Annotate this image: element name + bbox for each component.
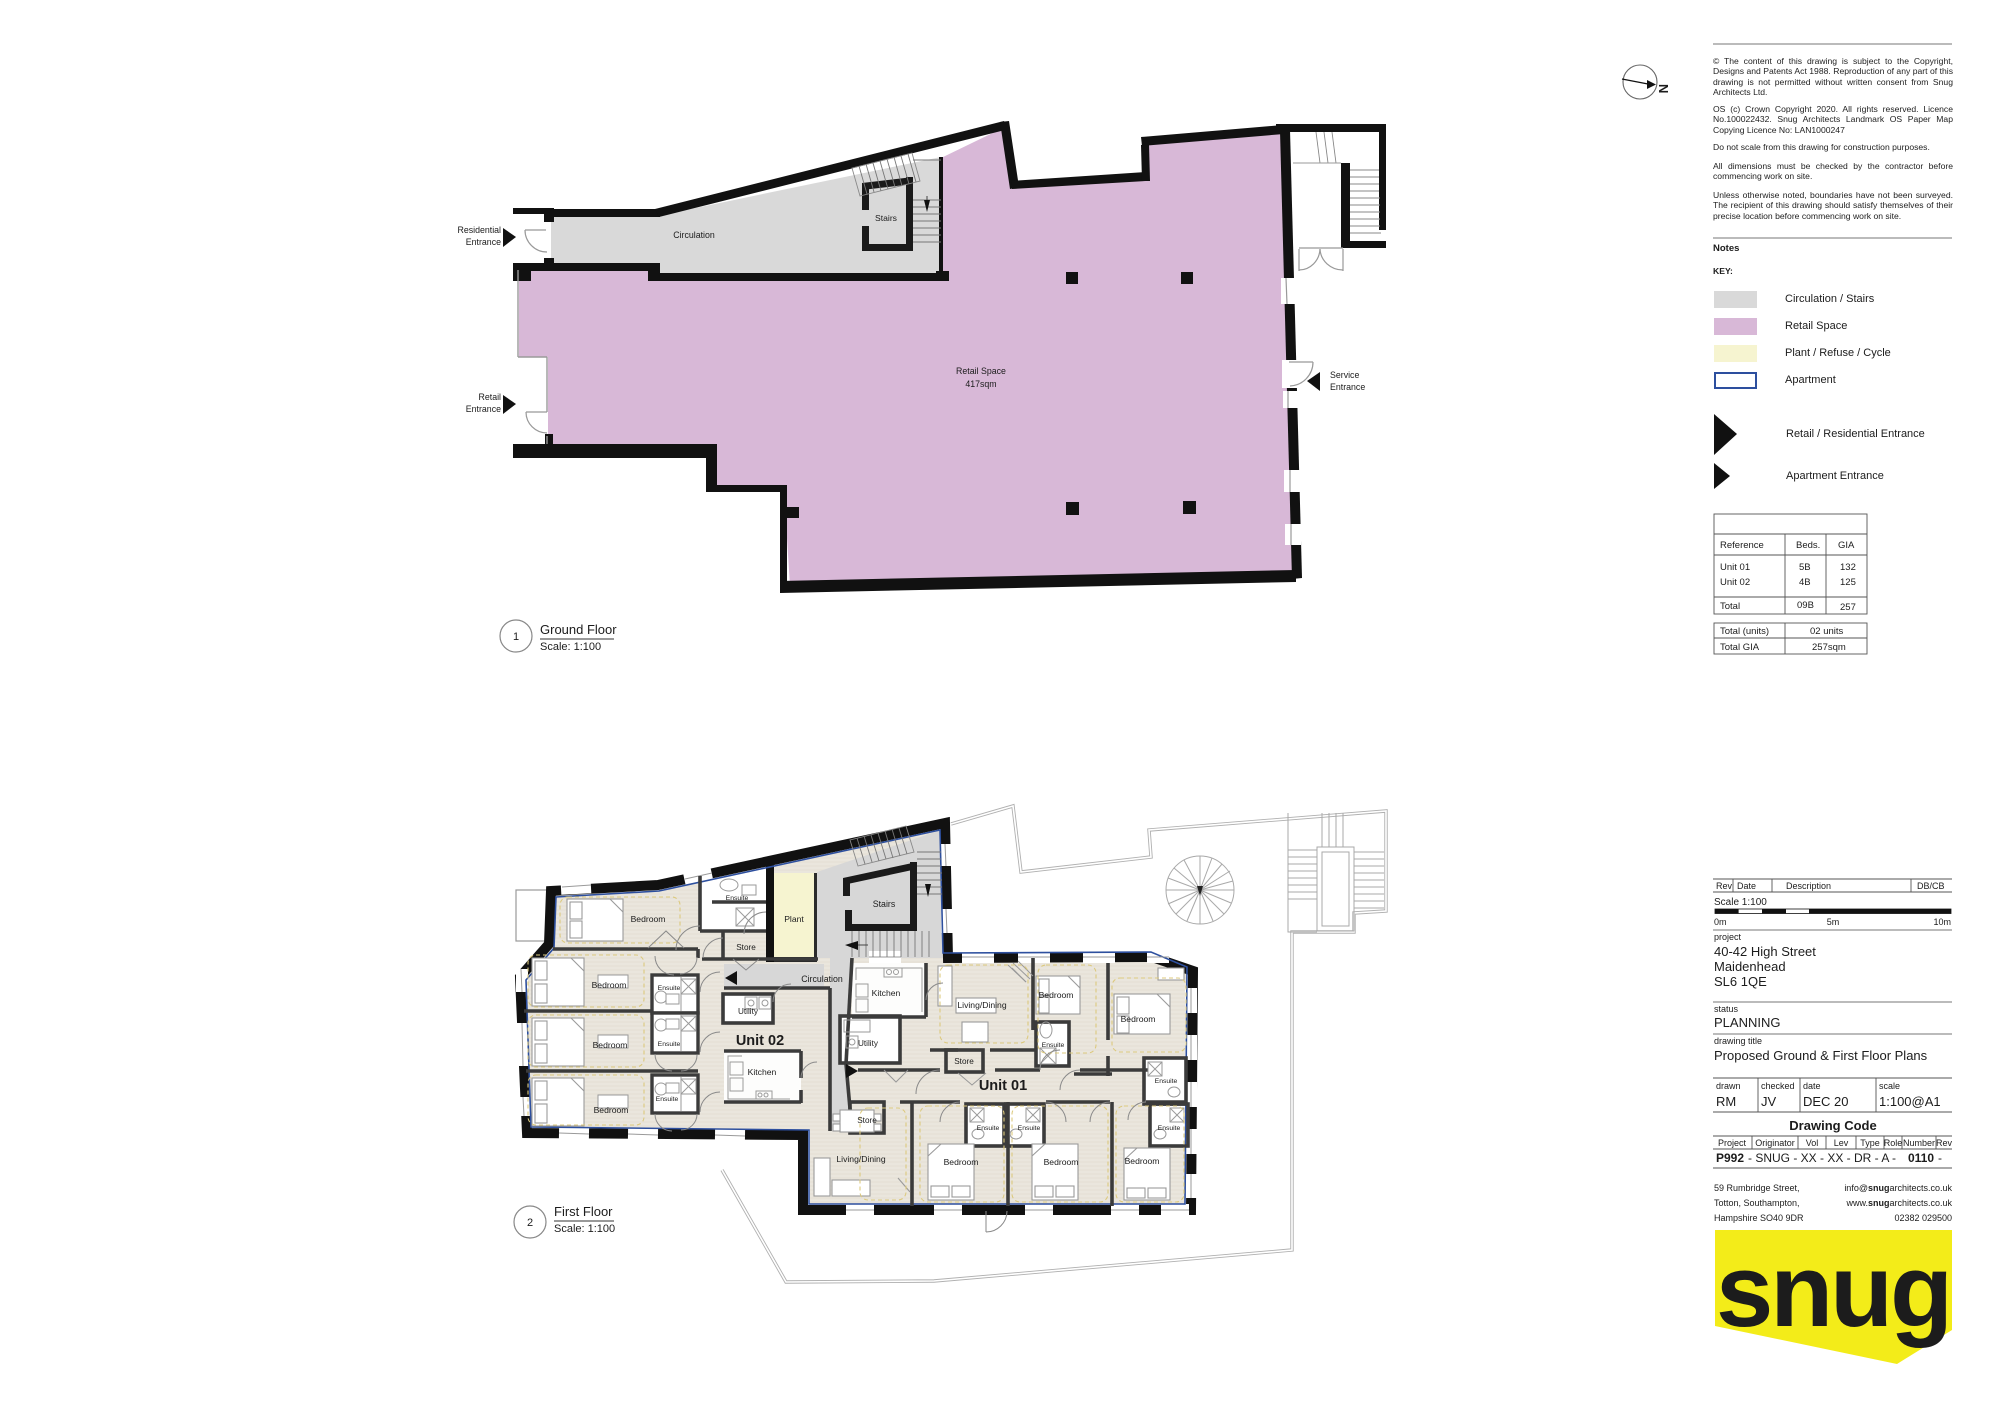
svg-text:Ensuite: Ensuite: [1155, 1078, 1178, 1085]
svg-text:Total GIA: Total GIA: [1720, 642, 1760, 653]
svg-text:Store: Store: [857, 1116, 877, 1125]
svg-text:JV: JV: [1761, 1094, 1777, 1109]
svg-text:Number: Number: [1903, 1138, 1935, 1148]
svg-text:Entrance: Entrance: [466, 237, 501, 247]
svg-text:scale: scale: [1879, 1081, 1900, 1091]
svg-text:Originator: Originator: [1755, 1138, 1795, 1148]
svg-text:Scale 1:100: Scale 1:100: [1714, 897, 1767, 908]
svg-text:Kitchen: Kitchen: [872, 988, 901, 998]
svg-text:Stairs: Stairs: [873, 899, 896, 909]
svg-text:125: 125: [1840, 577, 1856, 588]
svg-text:Bedroom: Bedroom: [593, 1040, 628, 1050]
svg-text:Rev: Rev: [1716, 881, 1733, 891]
svg-text:Bedroom: Bedroom: [592, 980, 627, 990]
svg-text:Circulation: Circulation: [673, 230, 715, 240]
svg-text:date: date: [1803, 1081, 1821, 1091]
svg-text:Rev: Rev: [1936, 1138, 1953, 1148]
svg-text:Unit 02: Unit 02: [736, 1033, 784, 1049]
svg-text:Service: Service: [1330, 370, 1359, 380]
svg-text:checked: checked: [1761, 1081, 1795, 1091]
svg-text:Ensuite: Ensuite: [656, 1096, 679, 1103]
svg-text:Kitchen: Kitchen: [748, 1067, 777, 1077]
svg-text:40-42 High Street: 40-42 High Street: [1714, 944, 1816, 959]
svg-text:Living/Dining: Living/Dining: [836, 1154, 885, 1164]
svg-text:Project: Project: [1718, 1138, 1747, 1148]
svg-text:Utility: Utility: [738, 1007, 759, 1016]
svg-text:Utility: Utility: [858, 1039, 879, 1048]
svg-text:Unit 01: Unit 01: [1720, 562, 1750, 573]
svg-text:Drawing Code: Drawing Code: [1789, 1118, 1876, 1133]
svg-text:Bedroom: Bedroom: [594, 1105, 629, 1115]
svg-text:Date: Date: [1737, 881, 1756, 891]
svg-text:Unit 02: Unit 02: [1720, 577, 1750, 588]
svg-text:Reference: Reference: [1720, 540, 1764, 551]
svg-text:132: 132: [1840, 562, 1856, 573]
svg-text:0m: 0m: [1714, 917, 1727, 927]
svg-text:1: 1: [513, 631, 519, 643]
svg-text:Total: Total: [1720, 601, 1740, 612]
svg-text:N: N: [1656, 84, 1671, 93]
svg-text:snug: snug: [1716, 1233, 1950, 1348]
svg-text:First Floor: First Floor: [554, 1204, 613, 1219]
svg-text:Ensuite: Ensuite: [977, 1125, 1000, 1132]
svg-text:10m: 10m: [1933, 917, 1951, 927]
svg-text:257sqm: 257sqm: [1812, 642, 1846, 653]
svg-text:P992: P992: [1716, 1151, 1744, 1165]
svg-text:Living/Dining: Living/Dining: [957, 1000, 1006, 1010]
svg-text:Store: Store: [736, 943, 756, 952]
svg-text:Bedroom: Bedroom: [1039, 990, 1074, 1000]
svg-text:Total (units): Total (units): [1720, 626, 1769, 637]
svg-text:Ensuite: Ensuite: [1018, 1125, 1041, 1132]
svg-text:DB/CB: DB/CB: [1917, 881, 1945, 891]
svg-text:GIA: GIA: [1838, 540, 1855, 551]
svg-text:Ensuite: Ensuite: [1158, 1125, 1181, 1132]
svg-text:Ensuite: Ensuite: [1042, 1042, 1065, 1049]
svg-text:5m: 5m: [1827, 917, 1840, 927]
svg-text:Circulation: Circulation: [801, 974, 843, 984]
svg-text:Proposed Ground & First Floor: Proposed Ground & First Floor Plans: [1714, 1048, 1928, 1063]
svg-text:Bedroom: Bedroom: [1121, 1014, 1156, 1024]
svg-text:Retail: Retail: [479, 392, 502, 402]
svg-text:-: -: [1938, 1151, 1942, 1165]
svg-text:Unit 01: Unit 01: [979, 1078, 1027, 1094]
svg-text:Scale: 1:100: Scale: 1:100: [540, 641, 601, 653]
svg-text:Bedroom: Bedroom: [1044, 1157, 1079, 1167]
svg-text:DEC 20: DEC 20: [1803, 1094, 1849, 1109]
svg-text:project: project: [1714, 932, 1742, 942]
svg-text:0110: 0110: [1908, 1151, 1934, 1165]
svg-text:Bedroom: Bedroom: [944, 1157, 979, 1167]
svg-text:Entrance: Entrance: [466, 404, 501, 414]
svg-text:02 units: 02 units: [1810, 626, 1844, 637]
svg-text:Residential: Residential: [457, 225, 501, 235]
svg-text:Maidenhead: Maidenhead: [1714, 959, 1786, 974]
svg-text:Description: Description: [1786, 881, 1831, 891]
svg-text:417sqm: 417sqm: [965, 379, 996, 389]
svg-text:Bedroom: Bedroom: [1125, 1156, 1160, 1166]
svg-text:Entrance: Entrance: [1330, 382, 1365, 392]
svg-text:PLANNING: PLANNING: [1714, 1015, 1780, 1030]
svg-text:drawing title: drawing title: [1714, 1036, 1762, 1046]
svg-text:Plant: Plant: [784, 914, 804, 924]
svg-text:drawn: drawn: [1716, 1081, 1741, 1091]
svg-text:09B: 09B: [1797, 600, 1814, 611]
svg-text:Lev: Lev: [1834, 1138, 1849, 1148]
svg-text:Beds.: Beds.: [1796, 540, 1820, 551]
svg-text:257: 257: [1840, 602, 1856, 613]
svg-text:Scale: 1:100: Scale: 1:100: [554, 1223, 615, 1235]
svg-text:Ensuite: Ensuite: [658, 1041, 681, 1048]
svg-text:Type: Type: [1860, 1138, 1880, 1148]
svg-text:Stairs: Stairs: [875, 213, 897, 223]
svg-text:Ensuite: Ensuite: [726, 895, 749, 902]
svg-text:SL6 1QE: SL6 1QE: [1714, 974, 1767, 989]
svg-text:Ground Floor: Ground Floor: [540, 622, 617, 637]
svg-text:Retail Space: Retail Space: [956, 366, 1006, 376]
svg-text:2: 2: [527, 1217, 533, 1229]
svg-text:Role: Role: [1884, 1138, 1903, 1148]
svg-text:Store: Store: [954, 1057, 974, 1066]
svg-text:Vol: Vol: [1806, 1138, 1819, 1148]
svg-text:Bedroom: Bedroom: [631, 914, 666, 924]
svg-text:4B: 4B: [1799, 577, 1811, 588]
svg-text:RM: RM: [1716, 1094, 1736, 1109]
svg-text:Ensuite: Ensuite: [658, 985, 681, 992]
svg-text:status: status: [1714, 1004, 1739, 1014]
svg-text:5B: 5B: [1799, 562, 1811, 573]
svg-text:1:100@A1: 1:100@A1: [1879, 1094, 1941, 1109]
svg-text:- SNUG - XX - XX - DR: - SNUG - XX - XX - DR - A -: [1748, 1151, 1896, 1165]
